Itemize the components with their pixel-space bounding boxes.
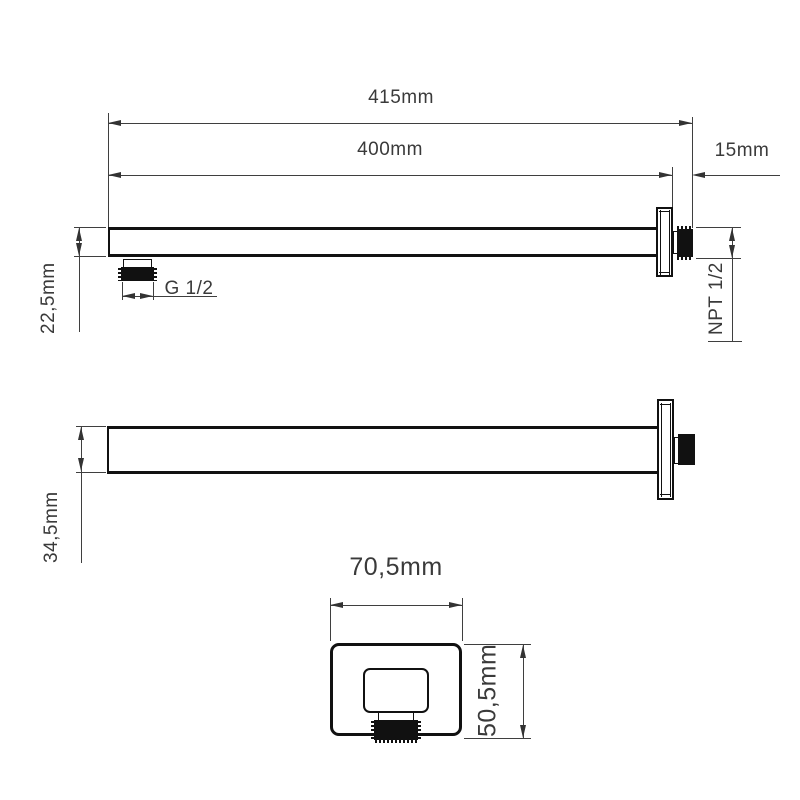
flange-chamfer-line [660, 494, 671, 495]
extension-line [672, 167, 673, 207]
arrowhead [729, 245, 735, 258]
flange-inner-line [669, 210, 670, 275]
arrowhead [520, 645, 526, 658]
thread-teeth [677, 257, 693, 260]
dimension-label-wall-clearance: 15mm [707, 140, 777, 162]
dimension-label-arm-length: 400mm [340, 139, 440, 161]
extension-line [153, 282, 154, 300]
dimension-label-arm-width: 34,5mm [39, 489, 65, 565]
dimension-label-outlet-thread: G 1/2 [158, 278, 220, 300]
flange-inner-line [661, 403, 662, 497]
thread-teeth [154, 268, 157, 281]
dimension-line-415 [108, 123, 692, 124]
thread-teeth [118, 268, 121, 281]
arrowhead [78, 427, 84, 440]
shower-arm-technical-drawing: 415mm 400mm 15mm 22,5mm G 1/2 NPT 1/2 34… [0, 0, 800, 800]
plan-view-arm-bar [107, 426, 657, 474]
arrowhead [76, 243, 82, 256]
dimension-line-70-5 [330, 605, 462, 606]
thread-teeth [375, 740, 417, 743]
arrowhead [76, 228, 82, 241]
dimension-label-arm-height: 22,5mm [36, 262, 62, 334]
extension-line [462, 598, 463, 641]
arrowhead [449, 602, 462, 608]
arrowhead [78, 458, 84, 471]
dimension-line-400 [108, 175, 672, 176]
arrowhead [122, 293, 135, 299]
dimension-label-inlet-thread: NPT 1/2 [704, 258, 730, 340]
escutcheon-npt-thread [374, 720, 418, 740]
arrowhead [729, 228, 735, 241]
arrowhead [108, 120, 121, 126]
arrowhead [679, 120, 692, 126]
side-view-npt-thread [677, 229, 693, 257]
arrowhead [108, 172, 121, 178]
side-view-wall-flange [656, 207, 673, 277]
escutcheon-inner-boss [363, 668, 429, 713]
dimension-line-34-5 [81, 427, 82, 563]
flange-inner-line [670, 403, 671, 497]
side-view-arm-bar [108, 227, 656, 257]
flange-chamfer-line [659, 211, 670, 212]
dimension-label-escutcheon-width: 70,5mm [346, 553, 446, 582]
extension-line [108, 113, 109, 227]
label-underline [708, 341, 742, 342]
plan-view-npt-thread [678, 434, 695, 465]
plan-view-wall-flange [657, 399, 674, 500]
outlet-g-thread [121, 267, 154, 281]
dimension-label-overall-length: 415mm [351, 87, 451, 109]
thread-teeth [371, 721, 374, 739]
flange-inner-line [660, 210, 661, 275]
dimension-tail-15 [705, 175, 780, 176]
thread-teeth [677, 226, 693, 229]
arrowhead [692, 172, 705, 178]
arrowhead [520, 725, 526, 738]
arrowhead [330, 602, 343, 608]
arrowhead [659, 172, 672, 178]
dimension-label-escutcheon-height: 50,5mm [472, 648, 504, 732]
flange-chamfer-line [659, 272, 670, 273]
extension-line [464, 738, 531, 739]
thread-teeth [418, 721, 421, 739]
arrowhead [140, 293, 153, 299]
flange-chamfer-line [660, 404, 671, 405]
